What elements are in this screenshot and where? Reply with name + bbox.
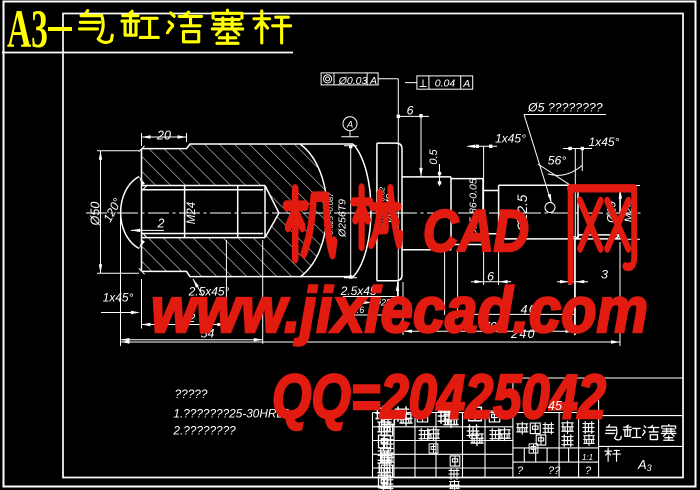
svg-text:20: 20	[156, 129, 171, 143]
svg-text:2: 2	[157, 217, 165, 231]
svg-text:A: A	[369, 75, 377, 87]
svg-text:Ø256T9: Ø256T9	[337, 199, 349, 238]
svg-text:Ø5 ????????: Ø5 ????????	[527, 101, 603, 115]
svg-text:www.jixiecad.com: www.jixiecad.com	[151, 274, 648, 346]
svg-text:45: 45	[548, 399, 562, 413]
svg-text:6: 6	[407, 104, 414, 118]
svg-text:A: A	[346, 120, 353, 131]
svg-text:CAD: CAD	[423, 199, 529, 264]
svg-text:56°: 56°	[548, 154, 567, 168]
svg-text:1x45°: 1x45°	[103, 291, 134, 305]
svg-text:Ø0.03: Ø0.03	[338, 75, 368, 87]
svg-text:M24: M24	[186, 202, 198, 224]
svg-text:??: ??	[548, 465, 561, 477]
svg-text:?: ?	[585, 465, 592, 477]
svg-text:1:1: 1:1	[582, 453, 593, 462]
svg-text:Ø50: Ø50	[89, 202, 103, 227]
svg-text:A: A	[462, 78, 470, 90]
svg-text:?????: ?????	[175, 387, 208, 401]
svg-text:0.5: 0.5	[428, 148, 440, 164]
svg-text:?: ?	[517, 465, 524, 477]
svg-text:0.04: 0.04	[435, 78, 456, 90]
svg-text:A3: A3	[7, 0, 48, 59]
svg-text:1x45°: 1x45°	[495, 132, 526, 146]
svg-text:2.????????: 2.????????	[172, 424, 236, 438]
svg-text:QQ=20425042: QQ=20425042	[272, 363, 606, 432]
svg-text:1x45°: 1x45°	[589, 135, 620, 149]
